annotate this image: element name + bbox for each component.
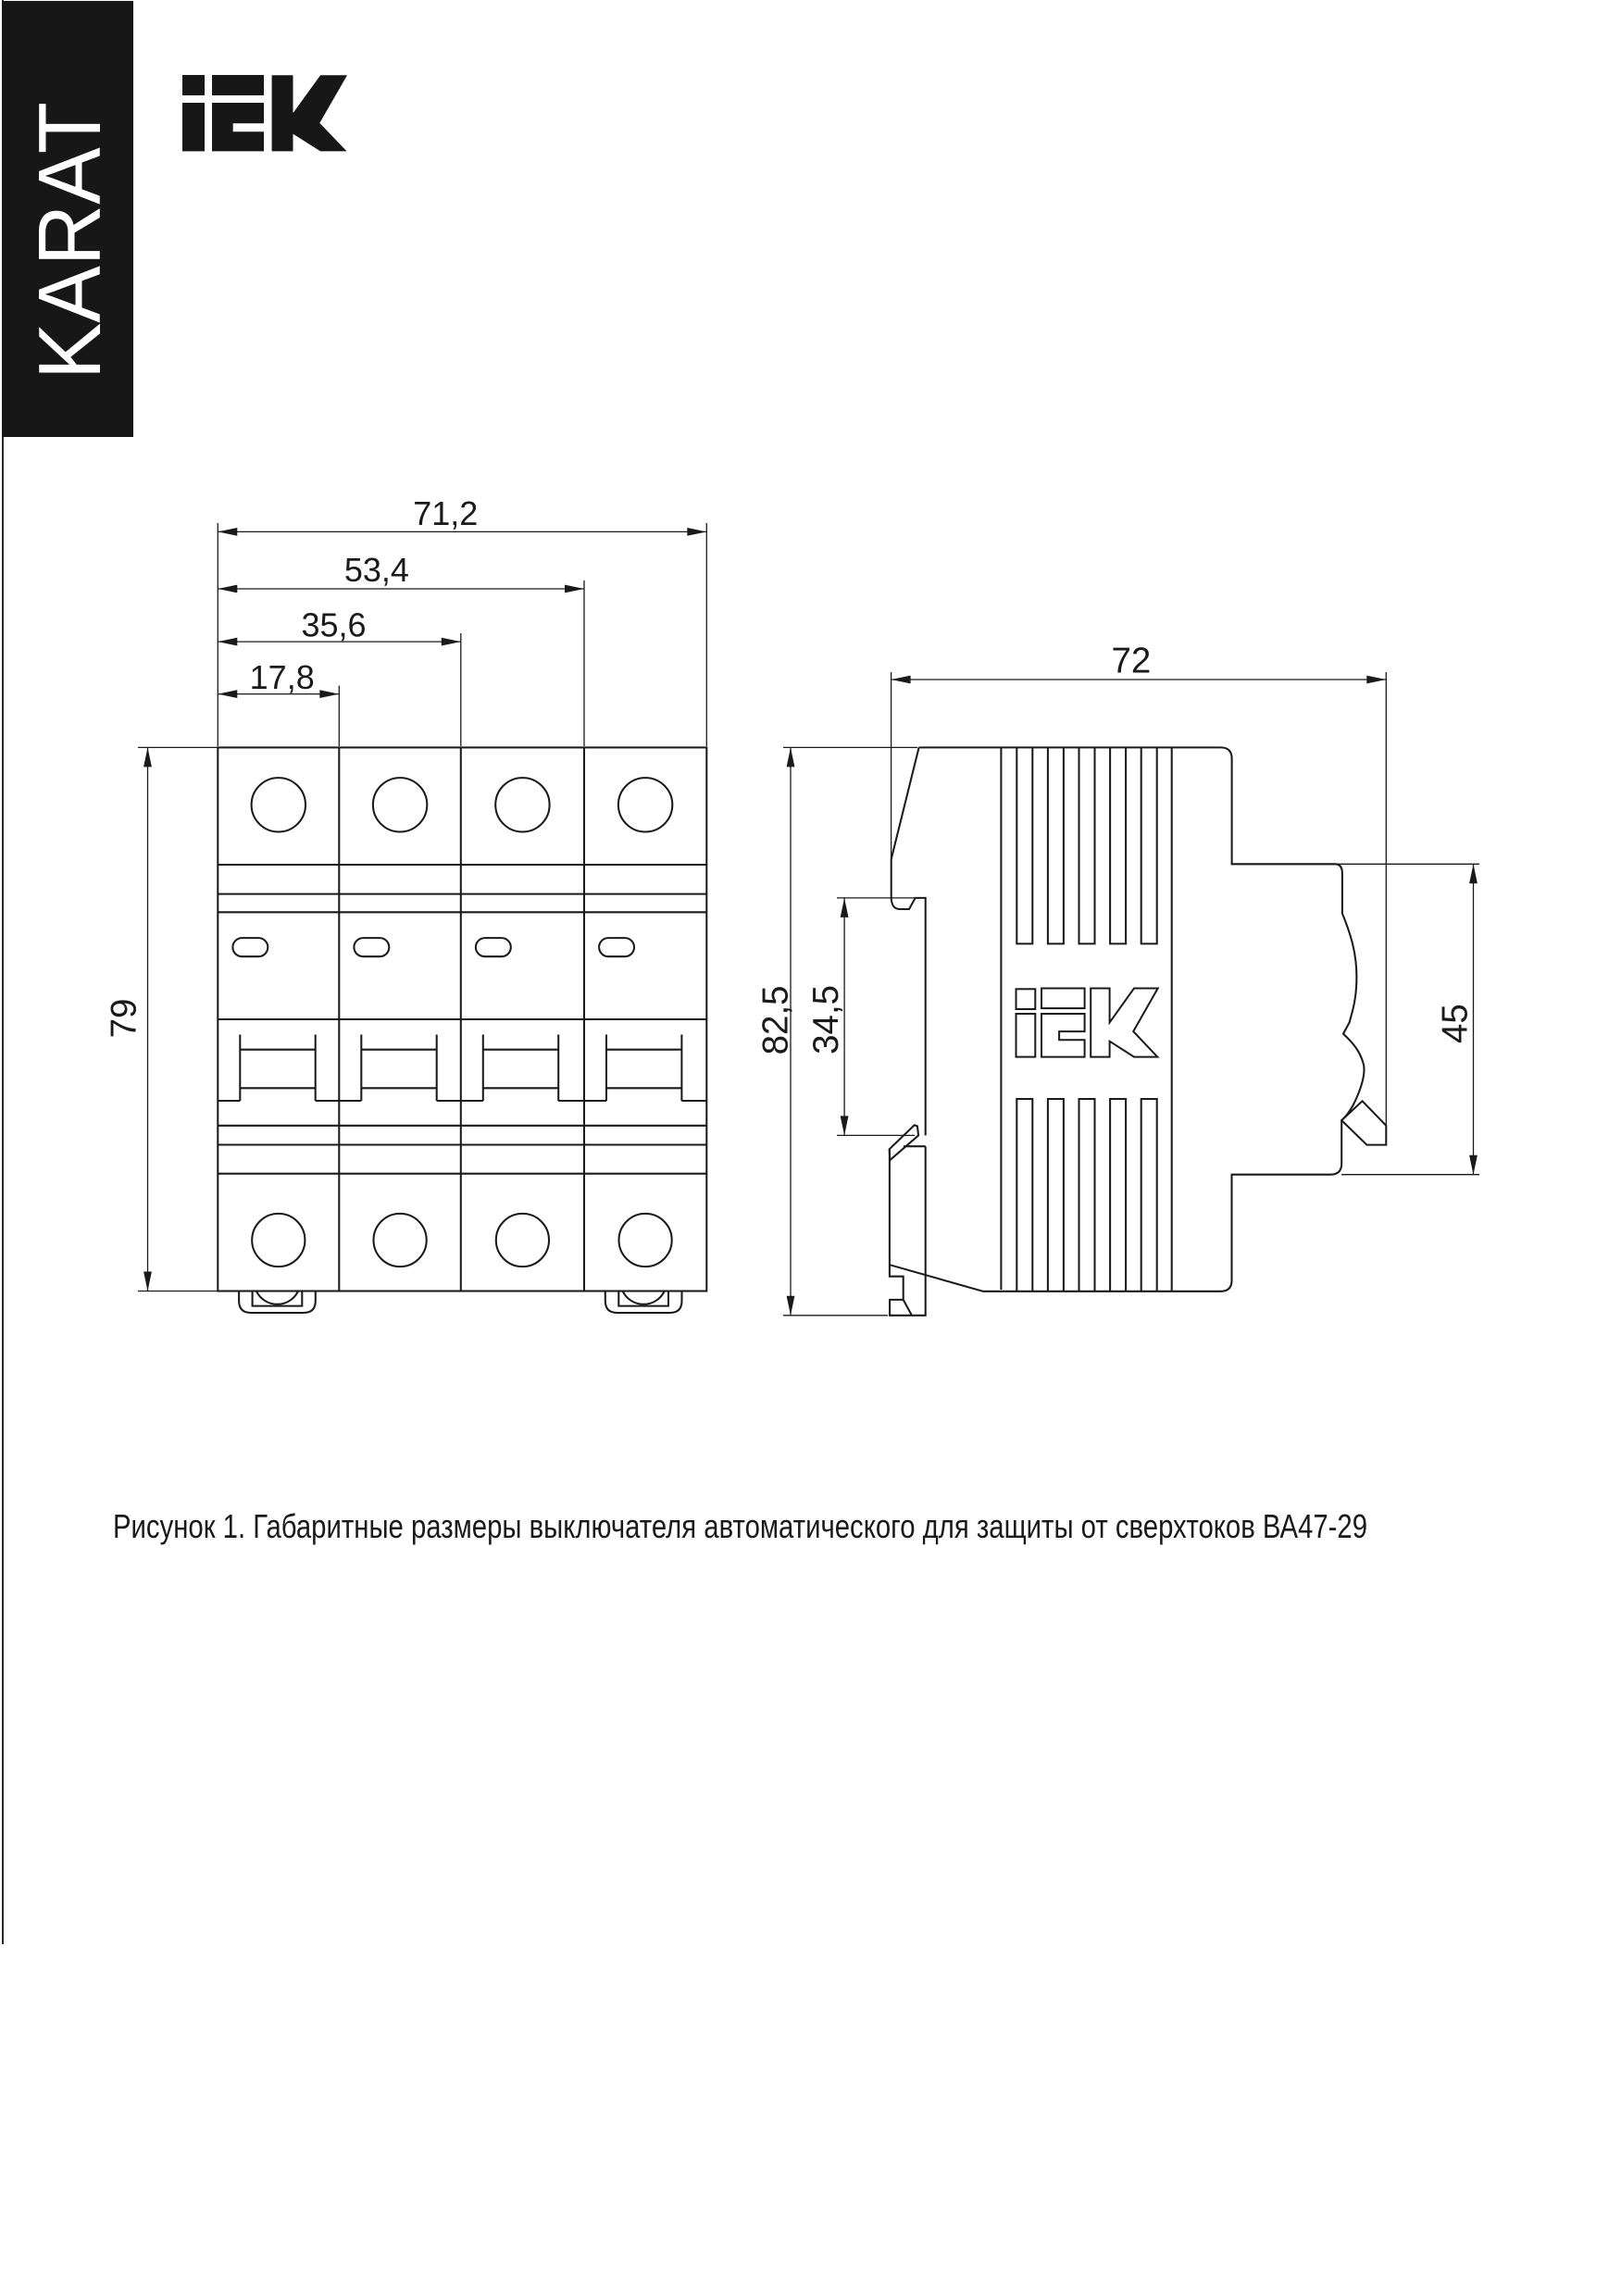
svg-text:53,4: 53,4 [344, 551, 409, 589]
svg-text:17,8: 17,8 [250, 658, 315, 696]
svg-text:35,6: 35,6 [301, 605, 366, 643]
svg-text:79: 79 [105, 999, 144, 1039]
svg-text:45: 45 [1435, 1004, 1475, 1043]
svg-text:KARAT: KARAT [20, 102, 119, 380]
svg-text:34,5: 34,5 [806, 985, 846, 1054]
svg-text:82,5: 82,5 [755, 985, 795, 1054]
svg-text:72: 72 [1111, 642, 1151, 681]
svg-text:71,2: 71,2 [413, 494, 478, 532]
svg-text:Рисунок 1. Габаритные размеры: Рисунок 1. Габаритные размеры выключател… [113, 1507, 1367, 1545]
